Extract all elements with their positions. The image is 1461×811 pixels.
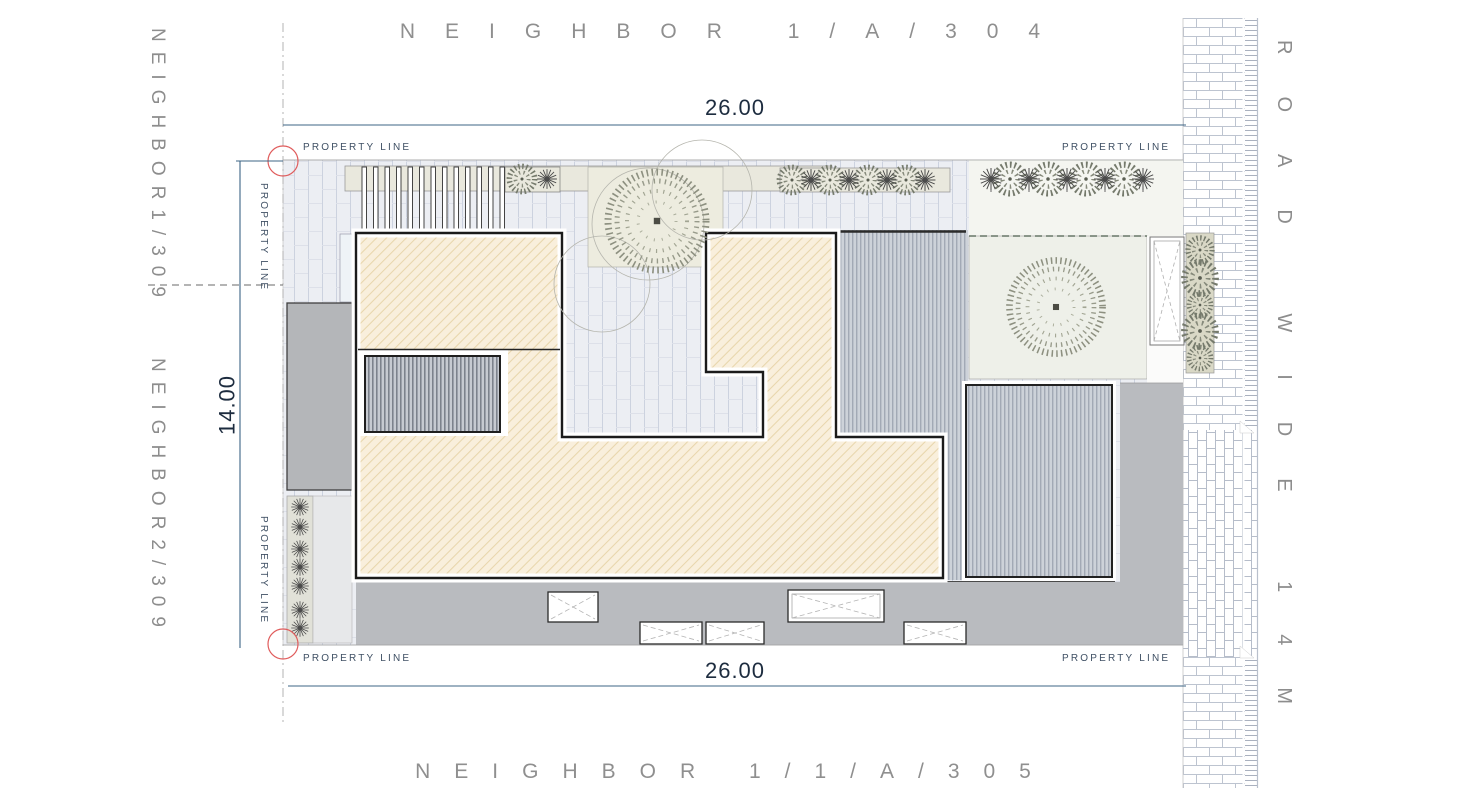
road-paving bbox=[1183, 18, 1258, 788]
star-plant-icon bbox=[877, 170, 898, 191]
driveway-band bbox=[356, 582, 1183, 645]
dimension-text-top: 26.00 bbox=[690, 95, 780, 121]
site-plan-canvas: NEIGHBOR 1/A/304 NEIGHBOR 1/1/A/305 NEIG… bbox=[0, 0, 1461, 811]
star-plant-icon bbox=[1018, 168, 1040, 190]
property-line-label-left-upper: PROPERTY LINE bbox=[258, 183, 269, 291]
property-line-label-bottom-left: PROPERTY LINE bbox=[303, 653, 411, 664]
property-line-label-top-left: PROPERTY LINE bbox=[303, 142, 411, 153]
star-plant-icon bbox=[801, 170, 822, 191]
road-curb bbox=[1245, 657, 1257, 788]
star-plant-icon bbox=[291, 577, 309, 595]
star-plant-icon bbox=[291, 540, 309, 558]
star-plant-icon bbox=[291, 601, 309, 619]
dimension-text-bottom: 26.00 bbox=[690, 658, 780, 684]
neighbor-label-bottom: NEIGHBOR 1/1/A/305 bbox=[330, 760, 1140, 784]
side-terrace bbox=[287, 303, 352, 490]
skylight-icon bbox=[788, 590, 884, 622]
star-plant-icon bbox=[537, 169, 557, 189]
road-planter bbox=[1184, 233, 1215, 373]
star-plant-icon bbox=[291, 498, 309, 516]
neighbor-label-top: NEIGHBOR 1/A/304 bbox=[330, 20, 1140, 44]
star-plant-icon bbox=[1094, 168, 1116, 190]
neighbor-label-left-upper: NEIGHBOR1/309 bbox=[146, 28, 168, 307]
star-plant-icon bbox=[291, 558, 309, 576]
road-curb bbox=[1245, 18, 1257, 430]
star-plant-icon bbox=[980, 168, 1002, 190]
deck-platform bbox=[966, 385, 1112, 577]
star-plant-icon bbox=[839, 170, 860, 191]
skylight-icon bbox=[706, 622, 764, 644]
star-plant-icon bbox=[1132, 168, 1154, 190]
skylight-icon bbox=[548, 592, 598, 622]
skylight-icon bbox=[1150, 237, 1184, 345]
star-plant-icon bbox=[1056, 168, 1078, 190]
property-line-label-bottom-right: PROPERTY LINE bbox=[1062, 653, 1170, 664]
star-plant-icon bbox=[915, 170, 936, 191]
property-line-label-top-right: PROPERTY LINE bbox=[1062, 142, 1170, 153]
star-plant-icon bbox=[291, 518, 309, 536]
property-line-label-left-lower: PROPERTY LINE bbox=[258, 516, 269, 624]
skylight-icon bbox=[640, 622, 702, 644]
left-side-path bbox=[313, 496, 352, 643]
side-yard-gray bbox=[1120, 383, 1183, 583]
dimension-text-left: 14.00 bbox=[215, 358, 241, 453]
stairs bbox=[365, 356, 500, 432]
skylight-icon bbox=[904, 622, 966, 644]
road-label: ROAD WIDE 14M bbox=[1272, 40, 1295, 746]
neighbor-label-left-lower: NEIGHBOR2/309 bbox=[146, 358, 168, 637]
side-entry-strip bbox=[340, 234, 352, 302]
